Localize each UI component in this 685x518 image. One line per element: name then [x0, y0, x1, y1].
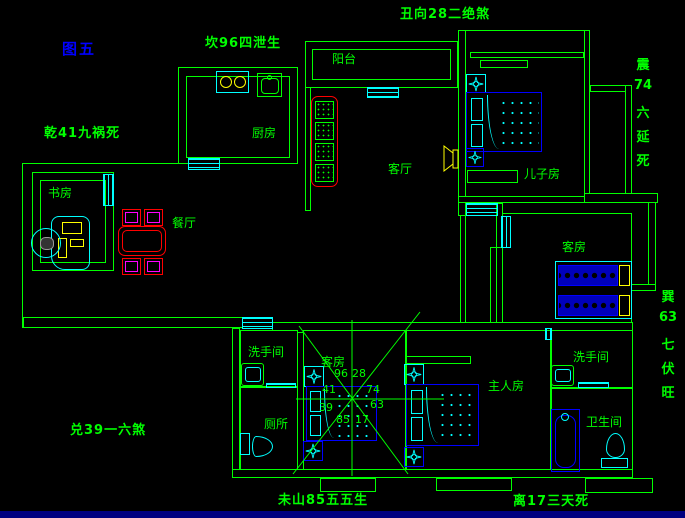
status-bar — [0, 511, 685, 518]
room-label-guest-right: 客房 — [562, 241, 586, 253]
vertical-char: 74 — [632, 78, 654, 102]
vertical-char: 六 — [632, 102, 654, 126]
fengshui-label-li: 离17三天死 — [513, 495, 589, 508]
room-label-living: 客厅 — [388, 163, 412, 175]
compass-number: 41 — [322, 384, 336, 395]
room-label-bathroom: 卫生间 — [586, 416, 622, 428]
compass-number: 39 — [319, 402, 333, 413]
vertical-char: 死 — [632, 150, 654, 174]
compass-number: 96 — [334, 368, 348, 379]
room-label-kitchen: 厨房 — [252, 127, 276, 139]
fengshui-label-zhen: 震 74 六 延 死 — [632, 54, 654, 174]
compass-lines-overlay — [0, 0, 685, 518]
floor-plan-canvas: 图五 坎96四泄生 丑向28二绝煞 乾41九祸死 兑39一六煞 未山85五五生 … — [0, 0, 685, 518]
vertical-char: 七 — [657, 334, 679, 358]
room-label-balcony: 阳台 — [332, 53, 356, 65]
vertical-char: 伏 — [657, 358, 679, 382]
fengshui-label-chou: 丑向28二绝煞 — [400, 8, 490, 21]
room-label-study: 书房 — [48, 187, 72, 199]
fengshui-label-qian: 乾41九祸死 — [44, 127, 120, 140]
fengshui-label-wei: 未山85五五生 — [278, 494, 368, 507]
tv-speaker-icon — [444, 146, 458, 171]
vertical-char: 巽 — [657, 286, 679, 310]
vertical-char: 旺 — [657, 382, 679, 406]
compass-number: 28 — [352, 368, 366, 379]
vertical-char: 延 — [632, 126, 654, 150]
compass-number: 63 — [370, 399, 384, 410]
compass-number: 17 — [355, 414, 369, 425]
room-label-washroom-right: 洗手间 — [573, 351, 609, 363]
compass-number: 74 — [366, 384, 380, 395]
figure-label: 图五 — [62, 38, 96, 59]
fengshui-label-dui: 兑39一六煞 — [70, 424, 146, 437]
fengshui-label-kan: 坎96四泄生 — [205, 37, 281, 50]
room-label-washroom-left: 洗手间 — [248, 346, 284, 358]
room-label-master: 主人房 — [488, 380, 524, 392]
room-label-toilet: 厕所 — [264, 418, 288, 430]
room-label-dining: 餐厅 — [172, 217, 196, 229]
vertical-char: 63 — [657, 310, 679, 334]
compass-number: 85 — [336, 414, 350, 425]
vertical-char: 震 — [632, 54, 654, 78]
fengshui-label-xun: 巽 63 七 伏 旺 — [657, 286, 679, 406]
room-label-sons-room: 儿子房 — [524, 168, 560, 180]
